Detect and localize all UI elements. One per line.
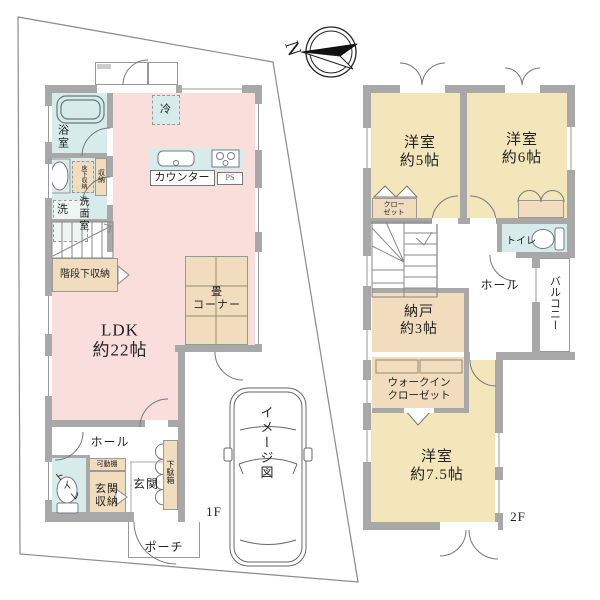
floor1-label: 1F [206, 504, 222, 520]
underfloor-storage-label: 床下収納 [80, 165, 86, 189]
door-opening [432, 218, 458, 224]
storage-label: 収納 [98, 169, 105, 183]
window [363, 430, 371, 462]
stove-icon [212, 150, 239, 167]
window-swing-arcs [400, 63, 445, 85]
folding-door-arcs [155, 444, 163, 505]
laundry-label: 洗 [57, 203, 69, 216]
door-opening [505, 85, 540, 93]
door-opening [400, 85, 445, 93]
window [255, 252, 262, 344]
entrance-label: 玄関 [133, 477, 159, 491]
window [182, 85, 242, 93]
door-opening [134, 512, 178, 522]
under-stairs-storage-label: 階段下収納 [60, 269, 110, 281]
closet-double-door-icon [374, 186, 417, 197]
door-opening [404, 408, 434, 413]
window [495, 433, 503, 467]
door-opening [470, 218, 496, 224]
balcony-door [532, 268, 540, 302]
window [363, 330, 371, 360]
bathroom-label: 浴室 [57, 124, 68, 150]
ps-label: PS [226, 173, 235, 183]
door-arc [82, 128, 110, 156]
storeroom-label: 納戸 約3帖 [400, 305, 438, 339]
floor2-label: 2F [510, 509, 526, 525]
window [255, 188, 262, 232]
washbasin-icon [49, 159, 70, 193]
shoe-cabinet-label: 下駄箱 [166, 460, 174, 484]
floorplan-canvas: N 浴室 洗面室 洗 床下収納 収納 冷 カウンター PS 階段下収納 畳 コー… [0, 0, 600, 600]
window [495, 480, 503, 513]
stairs-2f [372, 222, 437, 297]
bedroom75-label: 洋室 約7.5帖 [410, 448, 464, 484]
toilet-label-2f: トイレ [506, 236, 536, 248]
bedroom6-label: 洋室 約6帖 [502, 131, 543, 167]
storage-door-arrow [118, 266, 129, 284]
door-opening [502, 252, 516, 258]
closet-rod-icon [376, 360, 462, 373]
image-caption: イメージ図 [260, 406, 273, 481]
fridge-label: 冷 [160, 103, 172, 116]
door-opening [97, 85, 176, 93]
window [363, 128, 371, 168]
washroom-label: 洗面室 [77, 196, 87, 232]
window [45, 356, 52, 396]
door-arc [55, 432, 83, 460]
door-arc [140, 399, 168, 427]
window-swing-arcs [505, 68, 540, 85]
closet-label: クロー ゼット [384, 201, 405, 218]
counter-label: カウンター [155, 171, 210, 184]
window [255, 104, 262, 150]
balcony-label: バルコニー [549, 276, 560, 331]
window-swing-arcs [440, 530, 498, 559]
ldk-label: LDK 約22帖 [93, 321, 148, 362]
door-opening [470, 352, 496, 360]
door-arc [215, 352, 243, 380]
bathtub-icon [57, 96, 104, 123]
tatami-corner-label: 畳 コーナー [193, 286, 241, 312]
door-arc [470, 360, 496, 386]
door-opening [440, 522, 498, 530]
toilet-icon [532, 228, 564, 250]
movable-shelf-label: 可動棚 [97, 460, 118, 468]
porch-label: ポーチ [144, 540, 183, 554]
window [45, 462, 52, 500]
window [45, 296, 52, 334]
window [363, 256, 371, 286]
hall-label-1f: ホール [90, 435, 129, 449]
window [45, 164, 52, 198]
hall-label-2f: ホール [480, 278, 519, 292]
window [567, 127, 575, 170]
window [363, 380, 371, 403]
window [45, 106, 52, 142]
door-arc [123, 60, 148, 85]
entrance-storage-label: 玄関 収納 [95, 483, 119, 509]
closet-door-arcs [518, 191, 564, 203]
walk-in-closet-label: ウォークイン クローゼット [388, 377, 451, 402]
bedroom5-label: 洋室 約5帖 [400, 134, 441, 170]
kitchen-sink-icon [158, 151, 194, 166]
